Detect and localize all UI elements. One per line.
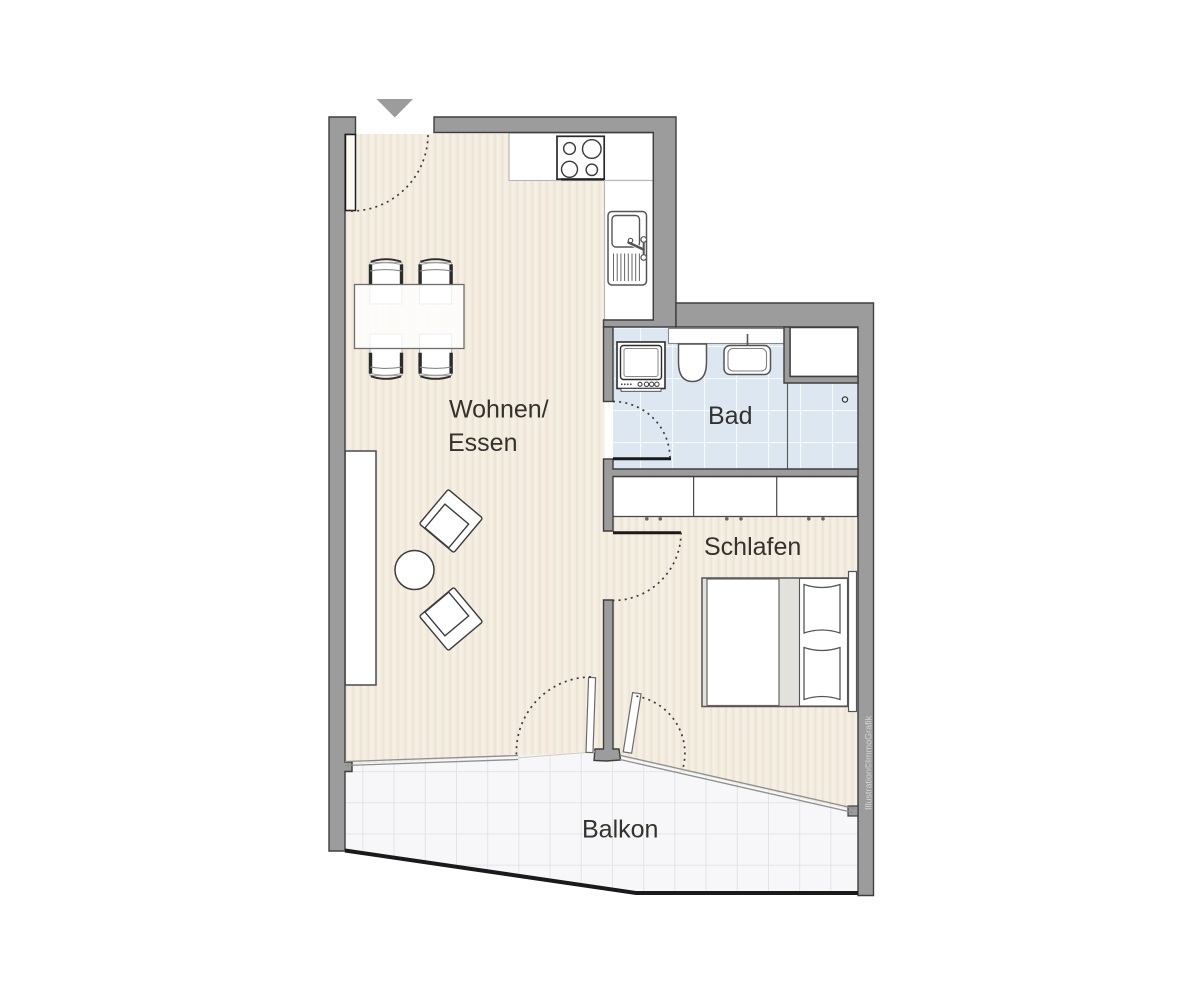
svg-text:Illustration©ImmoGrafik: Illustration©ImmoGrafik: [864, 715, 874, 810]
svg-text:Schlafen: Schlafen: [704, 533, 801, 561]
svg-text:Wohnen/: Wohnen/: [449, 396, 549, 424]
svg-text:Balkon: Balkon: [582, 816, 658, 844]
svg-text:Essen: Essen: [448, 429, 517, 457]
svg-text:Bad: Bad: [708, 402, 752, 430]
